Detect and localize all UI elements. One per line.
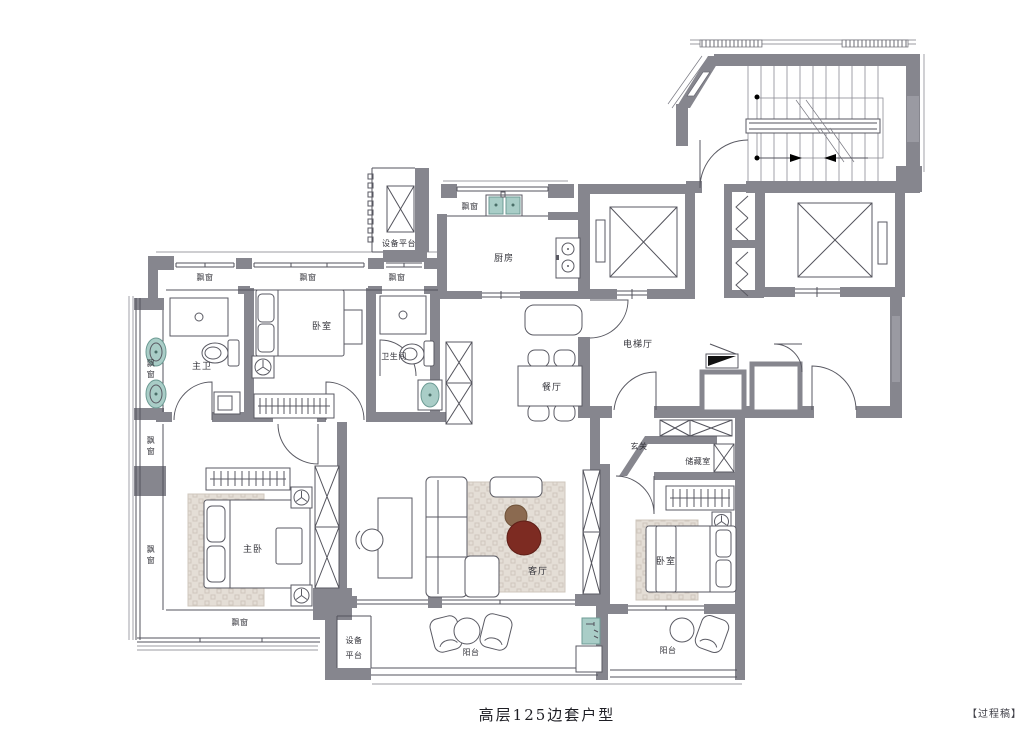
- label-bay-window: 飘窗: [232, 617, 249, 627]
- balcony-chair: [693, 613, 731, 655]
- label-bay-window: 飘窗: [147, 436, 156, 456]
- wardrobe: [206, 468, 290, 490]
- balcony-table: [670, 618, 694, 642]
- balcony-right-furniture: [670, 613, 731, 655]
- staircase: [746, 66, 883, 181]
- living-column: [583, 470, 600, 594]
- room-living: [356, 477, 565, 597]
- label-living: 客厅: [528, 565, 548, 577]
- coffee-table-large: [507, 521, 541, 555]
- wardrobe: [254, 394, 334, 418]
- wardrobe: [666, 486, 734, 510]
- label-storage: 储藏室: [685, 456, 711, 466]
- equipment-platform-top-unit: [387, 186, 414, 232]
- label-bay-window: 飘窗: [147, 545, 156, 565]
- elevator-1: [596, 207, 677, 277]
- label-bathroom: 卫生间: [381, 351, 407, 361]
- shaft-room-1: [702, 372, 744, 412]
- console-table: [490, 477, 542, 497]
- shaft-room-2: [752, 364, 800, 412]
- label-dining: 餐厅: [542, 381, 562, 393]
- room-kitchen: [486, 192, 580, 278]
- balcony-table: [454, 618, 480, 644]
- label-bay-window: 飘窗: [300, 272, 317, 282]
- label-bay-window: 飘窗: [462, 201, 479, 211]
- room-master-bedroom: [188, 468, 312, 606]
- stove: [556, 238, 580, 278]
- label-bedroom-top: 卧室: [312, 320, 332, 332]
- label-foyer: 玄关: [631, 441, 648, 451]
- label-balcony-right: 阳台: [660, 645, 677, 655]
- stair-window-hatch-right: [842, 40, 908, 47]
- label-bay-window: 飘窗: [389, 272, 406, 282]
- label-equipment-platform-bottom-2: 平台: [346, 650, 363, 660]
- elevator-2: [798, 203, 887, 277]
- washer-symbol: [252, 356, 274, 378]
- label-master-bedroom: 主卧: [243, 543, 263, 555]
- master-bedroom-column: [315, 466, 339, 588]
- room-master-bath: [170, 298, 240, 414]
- bathroom-cabinet-column: [446, 342, 472, 424]
- floor-plan-drawing: 飘窗 飘窗 飘窗 飘窗 飘窗 飘窗 飘窗 飘窗 设备平台 厨房 卧室 主卫 卫生…: [0, 0, 1030, 735]
- watermark: 【过程稿】: [967, 707, 1022, 720]
- desk: [356, 498, 412, 578]
- bed: [204, 500, 310, 588]
- label-kitchen: 厨房: [494, 252, 514, 264]
- kitchen-sink: [486, 192, 522, 216]
- label-elevator-hall: 电梯厅: [623, 338, 653, 350]
- fire-hydrant-symbol: [706, 344, 738, 368]
- page-title: 高层125边套户型: [479, 706, 616, 724]
- ceiling-fixture-symbol: [291, 487, 312, 508]
- vanity: [214, 392, 240, 414]
- label-balcony-center: 阳台: [463, 647, 480, 657]
- balcony-chair: [478, 612, 513, 652]
- floor-plan-page: 飘窗 飘窗 飘窗 飘窗 飘窗 飘窗 飘窗 飘窗 设备平台 厨房 卧室 主卫 卫生…: [0, 0, 1030, 735]
- label-equipment-platform-top: 设备平台: [382, 238, 416, 248]
- room-bedroom-right: [636, 486, 736, 600]
- ceiling-fixture-symbol: [291, 585, 312, 606]
- label-master-bath: 主卫: [192, 360, 212, 372]
- room-bedroom-top: [252, 290, 362, 418]
- room-dining: [518, 305, 582, 421]
- balcony-center-furniture: [428, 612, 602, 672]
- label-bedroom-right: 卧室: [656, 555, 676, 567]
- label-bay-window: 飘窗: [147, 359, 156, 379]
- label-equipment-platform-bottom-1: 设备: [346, 635, 363, 645]
- vanity-basin: [418, 380, 442, 410]
- stair-window-hatch-left: [700, 40, 762, 47]
- label-bay-window: 飘窗: [197, 272, 214, 282]
